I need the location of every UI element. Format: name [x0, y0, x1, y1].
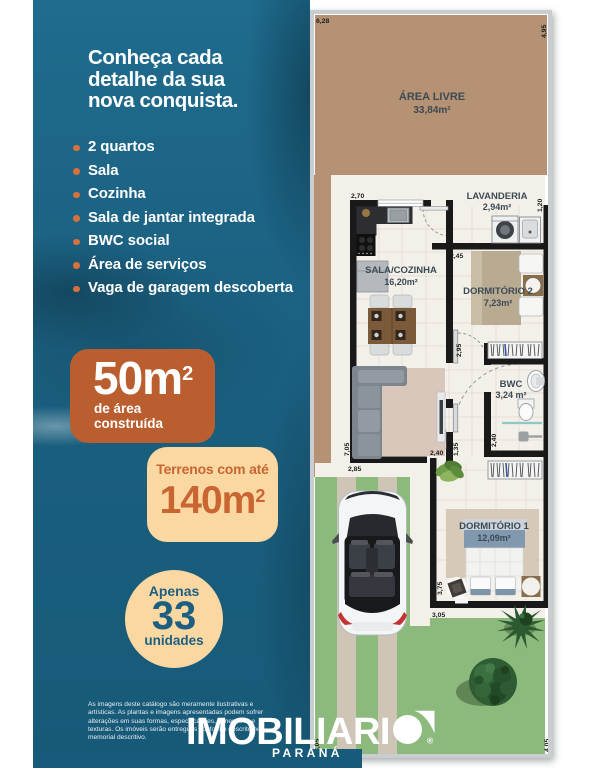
svg-text:SALA/COZINHA: SALA/COZINHA — [365, 265, 437, 276]
svg-text:7,05: 7,05 — [344, 443, 351, 456]
svg-text:2,85: 2,85 — [348, 466, 361, 473]
svg-text:BWC: BWC — [500, 379, 523, 390]
svg-text:DORMITÓRIO 1: DORMITÓRIO 1 — [459, 520, 529, 532]
svg-text:®: ® — [427, 736, 434, 746]
svg-text:7,23m²: 7,23m² — [484, 298, 513, 308]
svg-text:2,45: 2,45 — [450, 253, 463, 260]
svg-text:1,20: 1,20 — [537, 199, 544, 212]
svg-text:DORMITÓRIO 2: DORMITÓRIO 2 — [463, 285, 533, 297]
svg-text:LAVANDERIA: LAVANDERIA — [467, 191, 528, 202]
svg-text:2,70: 2,70 — [351, 193, 364, 200]
svg-text:3,05: 3,05 — [432, 612, 445, 619]
svg-text:3,24 m²: 3,24 m² — [495, 390, 526, 400]
svg-text:2,94m²: 2,94m² — [483, 202, 512, 212]
svg-text:1,35: 1,35 — [523, 451, 536, 458]
svg-text:2,40: 2,40 — [491, 434, 498, 447]
svg-text:2,40: 2,40 — [430, 450, 443, 457]
svg-text:33,84m²: 33,84m² — [413, 105, 451, 116]
svg-text:4,05: 4,05 — [544, 739, 548, 752]
svg-text:12,09m²: 12,09m² — [477, 533, 511, 543]
svg-text:16,20m²: 16,20m² — [384, 277, 418, 287]
svg-text:1,35: 1,35 — [453, 443, 460, 456]
svg-text:ÁREA LIVRE: ÁREA LIVRE — [399, 90, 465, 103]
svg-text:2,95: 2,95 — [456, 344, 463, 357]
svg-text:3,75: 3,75 — [437, 582, 444, 595]
svg-text:6,28: 6,28 — [316, 18, 329, 25]
svg-text:4,95: 4,95 — [541, 25, 548, 38]
